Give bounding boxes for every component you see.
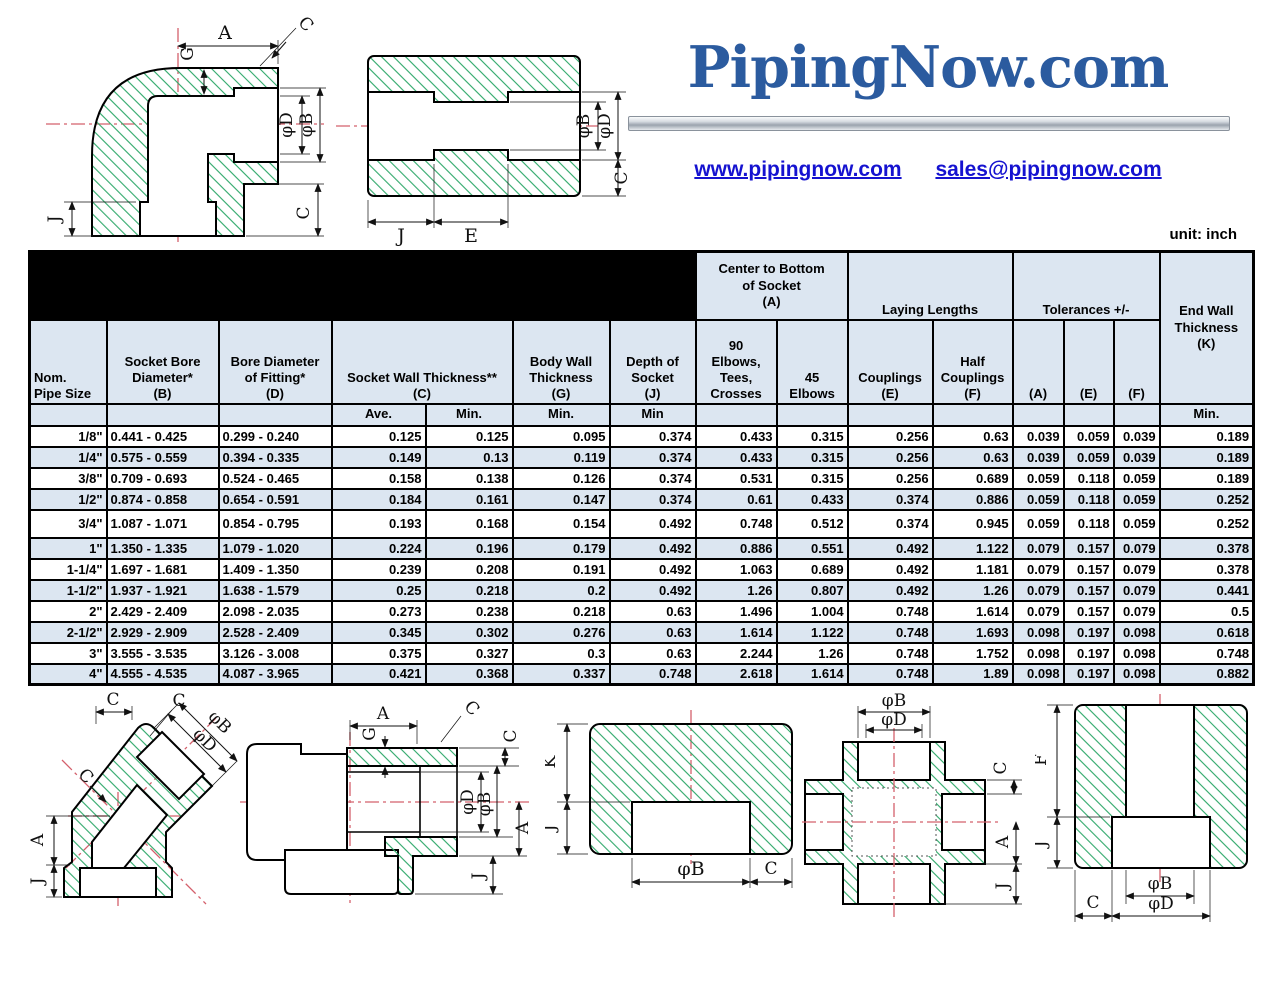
subheader-empty xyxy=(219,404,332,426)
value-cell: 0.492 xyxy=(610,510,696,538)
value-cell: 0.61 xyxy=(696,489,777,510)
row-size-cell: 1-1/4" xyxy=(30,559,107,580)
group-header-tolerances: Tolerances +/- xyxy=(1013,252,1160,320)
dim-label-j: J xyxy=(395,225,405,246)
dim-label-phi-d: φD xyxy=(881,710,907,730)
dim-label-j: J xyxy=(993,882,1013,891)
value-cell: 0.531 xyxy=(696,468,777,489)
col-header-b: Socket Bore Diameter* (B) xyxy=(107,320,219,404)
value-cell: 0.748 xyxy=(848,601,933,622)
table-title: 3000# SOCKET WELD FITTING DIMENSIONS STA… xyxy=(30,252,696,320)
value-cell: 0.63 xyxy=(610,622,696,643)
value-cell: 3.126 - 3.008 xyxy=(219,643,332,664)
value-cell: 0.345 xyxy=(332,622,426,643)
col-header-size: Nom. Pipe Size xyxy=(30,320,107,404)
value-cell: 0.059 xyxy=(1013,510,1064,538)
value-cell: 1.26 xyxy=(696,580,777,601)
value-cell: 0.079 xyxy=(1013,559,1064,580)
value-cell: 0.492 xyxy=(610,538,696,559)
value-cell: 0.098 xyxy=(1013,664,1064,685)
value-cell: 0.5 xyxy=(1160,601,1254,622)
value-cell: 4.555 - 4.535 xyxy=(107,664,219,685)
value-cell: 2.618 xyxy=(696,664,777,685)
col-header-f: Half Couplings (F) xyxy=(933,320,1013,404)
dim-label-phi-b: φB xyxy=(882,692,906,711)
value-cell: 0.239 xyxy=(332,559,426,580)
row-size-cell: 3/8" xyxy=(30,468,107,489)
value-cell: 4.087 - 3.965 xyxy=(219,664,332,685)
dim-label-c: C xyxy=(764,859,777,879)
dim-label-j: J xyxy=(469,872,489,881)
value-cell: 0.433 xyxy=(696,426,777,447)
table-title-line1: 3000# SOCKET WELD FITTING DIMENSIONS xyxy=(34,264,692,286)
tee-top-wall xyxy=(347,748,457,766)
dim-label-phi-d: φD xyxy=(595,113,615,139)
dim-label-phi-d: φD xyxy=(277,112,297,138)
contact-links: www.pipingnow.com sales@pipingnow.com xyxy=(628,158,1228,182)
subheader-j-min: Min xyxy=(610,404,696,426)
value-cell: 0.189 xyxy=(1160,447,1254,468)
value-cell: 0.433 xyxy=(777,489,848,510)
table-title-line2: STAINLESS STEEL 304/304L, 316/316L A182 xyxy=(34,286,692,308)
value-cell: 1.614 xyxy=(933,601,1013,622)
value-cell: 0.748 xyxy=(696,510,777,538)
value-cell: 0.189 xyxy=(1160,468,1254,489)
row-size-cell: 1-1/2" xyxy=(30,580,107,601)
subheader-row: Ave. Min. Min. Min Min. xyxy=(30,404,1254,426)
dim-label-a: A xyxy=(993,835,1013,849)
dim-label-j: J xyxy=(545,824,560,833)
value-cell: 0.315 xyxy=(777,468,848,489)
value-cell: 1.409 - 1.350 xyxy=(219,559,332,580)
dim-label-a: A xyxy=(376,704,390,724)
value-cell: 0.218 xyxy=(426,580,513,601)
value-cell: 0.138 xyxy=(426,468,513,489)
value-cell: 0.874 - 0.858 xyxy=(107,489,219,510)
table-row: 2"2.429 - 2.4092.098 - 2.0350.2730.2380.… xyxy=(30,601,1254,622)
value-cell: 0.63 xyxy=(610,643,696,664)
value-cell: 2.098 - 2.035 xyxy=(219,601,332,622)
value-cell: 0.126 xyxy=(513,468,610,489)
value-cell: 0.441 - 0.425 xyxy=(107,426,219,447)
dim-label-a: A xyxy=(28,833,48,847)
value-cell: 0.196 xyxy=(426,538,513,559)
col-header-e: Couplings (E) xyxy=(848,320,933,404)
value-cell: 0.441 xyxy=(1160,580,1254,601)
dim-label-k: K xyxy=(545,755,560,768)
value-cell: 0.302 xyxy=(426,622,513,643)
half-coupling-socket-bore xyxy=(1112,817,1210,868)
table-row: 1/8"0.441 - 0.4250.299 - 0.2400.1250.125… xyxy=(30,426,1254,447)
value-cell: 0.079 xyxy=(1013,538,1064,559)
value-cell: 0.374 xyxy=(848,489,933,510)
value-cell: 0.654 - 0.591 xyxy=(219,489,332,510)
subheader-empty xyxy=(1013,404,1064,426)
value-cell: 0.252 xyxy=(1160,510,1254,538)
value-cell: 0.512 xyxy=(777,510,848,538)
subheader-empty xyxy=(933,404,1013,426)
value-cell: 0.374 xyxy=(610,468,696,489)
value-cell: 0.059 xyxy=(1013,468,1064,489)
value-cell: 0.315 xyxy=(777,447,848,468)
value-cell: 0.184 xyxy=(332,489,426,510)
value-cell: 0.095 xyxy=(513,426,610,447)
drawing-45-elbow-section: C C φB φD C A J xyxy=(20,692,250,989)
col-header-tol-e: (E) xyxy=(1064,320,1114,404)
value-cell: 0.807 xyxy=(777,580,848,601)
value-cell: 2.528 - 2.409 xyxy=(219,622,332,643)
drawing-coupling-section: φB φD C J E xyxy=(330,6,630,246)
value-cell: 0.079 xyxy=(1114,559,1160,580)
value-cell: 0.039 xyxy=(1114,447,1160,468)
value-cell: 1.122 xyxy=(933,538,1013,559)
value-cell: 0.218 xyxy=(513,601,610,622)
tee-body-lower xyxy=(285,850,398,894)
value-cell: 0.098 xyxy=(1114,622,1160,643)
dim-label-a: A xyxy=(217,22,232,44)
row-size-cell: 3" xyxy=(30,643,107,664)
value-cell: 0.168 xyxy=(426,510,513,538)
subheader-empty xyxy=(777,404,848,426)
email-link[interactable]: sales@pipingnow.com xyxy=(935,158,1161,181)
group-header-row: 3000# SOCKET WELD FITTING DIMENSIONS STA… xyxy=(30,252,1254,320)
value-cell: 0.059 xyxy=(1064,447,1114,468)
value-cell: 0.551 xyxy=(777,538,848,559)
value-cell: 0.492 xyxy=(848,580,933,601)
value-cell: 0.276 xyxy=(513,622,610,643)
group-header-center-to-bottom: Center to Bottom of Socket (A) xyxy=(696,252,848,320)
subheader-empty xyxy=(696,404,777,426)
value-cell: 0.882 xyxy=(1160,664,1254,685)
value-cell: 0.368 xyxy=(426,664,513,685)
subheader-c-ave: Ave. xyxy=(332,404,426,426)
col-header-end-wall: End Wall Thickness (K) xyxy=(1160,252,1254,404)
value-cell: 1.181 xyxy=(933,559,1013,580)
value-cell: 0.315 xyxy=(777,426,848,447)
row-size-cell: 1" xyxy=(30,538,107,559)
dim-label-g: G xyxy=(178,47,198,61)
value-cell: 3.555 - 3.535 xyxy=(107,643,219,664)
value-cell: 0.374 xyxy=(610,489,696,510)
value-cell: 0.492 xyxy=(848,538,933,559)
value-cell: 0.748 xyxy=(848,664,933,685)
table-row: 1-1/2"1.937 - 1.9211.638 - 1.5790.250.21… xyxy=(30,580,1254,601)
value-cell: 0.374 xyxy=(848,510,933,538)
value-cell: 0.224 xyxy=(332,538,426,559)
value-cell: 0.157 xyxy=(1064,580,1114,601)
value-cell: 0.059 xyxy=(1114,489,1160,510)
table-row: 1/2"0.874 - 0.8580.654 - 0.5910.1840.161… xyxy=(30,489,1254,510)
value-cell: 0.374 xyxy=(610,426,696,447)
value-cell: 0.492 xyxy=(610,559,696,580)
drawing-cap-section: K J φB C xyxy=(545,692,800,989)
value-cell: 0.378 xyxy=(1160,559,1254,580)
value-cell: 0.197 xyxy=(1064,664,1114,685)
value-cell: 1.937 - 1.921 xyxy=(107,580,219,601)
dim-label-j: J xyxy=(45,215,65,224)
elbow-bore xyxy=(140,88,278,236)
dim-label-phi-b: φB xyxy=(1148,874,1172,894)
value-cell: 2.929 - 2.909 xyxy=(107,622,219,643)
value-cell: 0.13 xyxy=(426,447,513,468)
value-cell: 0.161 xyxy=(426,489,513,510)
value-cell: 1.752 xyxy=(933,643,1013,664)
value-cell: 0.492 xyxy=(610,580,696,601)
value-cell: 0.154 xyxy=(513,510,610,538)
col-header-j: Depth of Socket (J) xyxy=(610,320,696,404)
value-cell: 0.118 xyxy=(1064,489,1114,510)
value-cell: 0.238 xyxy=(426,601,513,622)
value-cell: 1.350 - 1.335 xyxy=(107,538,219,559)
value-cell: 0.886 xyxy=(933,489,1013,510)
col-header-a45: 45 Elbows xyxy=(777,320,848,404)
row-size-cell: 1/8" xyxy=(30,426,107,447)
value-cell: 1.638 - 1.579 xyxy=(219,580,332,601)
dim-label-g: G xyxy=(360,727,380,741)
col-header-g: Body Wall Thickness (G) xyxy=(513,320,610,404)
value-cell: 0.273 xyxy=(332,601,426,622)
datasheet-page: A C G φD φB J C xyxy=(0,0,1280,989)
value-cell: 1.89 xyxy=(933,664,1013,685)
value-cell: 0.575 - 0.559 xyxy=(107,447,219,468)
subheader-empty xyxy=(1064,404,1114,426)
table-row: 3"3.555 - 3.5353.126 - 3.0080.3750.3270.… xyxy=(30,643,1254,664)
value-cell: 0.256 xyxy=(848,426,933,447)
value-cell: 0.63 xyxy=(610,601,696,622)
dim-label-c-right: C xyxy=(501,729,521,742)
value-cell: 1.614 xyxy=(696,622,777,643)
table-row: 1-1/4"1.697 - 1.6811.409 - 1.3500.2390.2… xyxy=(30,559,1254,580)
value-cell: 0.157 xyxy=(1064,559,1114,580)
value-cell: 0.256 xyxy=(848,447,933,468)
drawing-90-elbow-section: A C G φD φB J C xyxy=(28,6,328,246)
col-header-c: Socket Wall Thickness** (C) xyxy=(332,320,513,404)
value-cell: 0.252 xyxy=(1160,489,1254,510)
value-cell: 0.059 xyxy=(1064,426,1114,447)
col-header-a90: 90 Elbows, Tees, Crosses xyxy=(696,320,777,404)
dim-label-phi-b: φB xyxy=(475,792,495,816)
dim-label-f: F xyxy=(1035,754,1051,766)
value-cell: 0.299 - 0.240 xyxy=(219,426,332,447)
value-cell: 0.059 xyxy=(1013,489,1064,510)
value-cell: 1.26 xyxy=(933,580,1013,601)
col-header-tol-a: (A) xyxy=(1013,320,1064,404)
value-cell: 1.697 - 1.681 xyxy=(107,559,219,580)
value-cell: 0.618 xyxy=(1160,622,1254,643)
col-header-tol-f: (F) xyxy=(1114,320,1160,404)
dim-label-phi-b: φB xyxy=(297,113,317,137)
table-row: 3/8"0.709 - 0.6930.524 - 0.4650.1580.138… xyxy=(30,468,1254,489)
value-cell: 0.189 xyxy=(1160,426,1254,447)
cap-bore xyxy=(632,802,750,854)
table-row: 1/4"0.575 - 0.5590.394 - 0.3350.1490.130… xyxy=(30,447,1254,468)
value-cell: 0.191 xyxy=(513,559,610,580)
value-cell: 1.496 xyxy=(696,601,777,622)
dim-label-c: C xyxy=(991,761,1011,774)
value-cell: 0.208 xyxy=(426,559,513,580)
dim-label-c-diag: C xyxy=(460,697,483,720)
dim-label-phi-b: φB xyxy=(677,858,704,880)
row-size-cell: 3/4" xyxy=(30,510,107,538)
logo-divider-bar xyxy=(628,116,1230,131)
value-cell: 0.125 xyxy=(332,426,426,447)
row-size-cell: 4" xyxy=(30,664,107,685)
value-cell: 0.079 xyxy=(1114,538,1160,559)
value-cell: 0.945 xyxy=(933,510,1013,538)
dim-label-e: E xyxy=(464,225,478,246)
value-cell: 0.433 xyxy=(696,447,777,468)
value-cell: 0.3 xyxy=(513,643,610,664)
elbow45-socket-bore-bottom xyxy=(80,868,156,897)
value-cell: 1.004 xyxy=(777,601,848,622)
value-cell: 0.149 xyxy=(332,447,426,468)
value-cell: 0.079 xyxy=(1013,580,1064,601)
value-cell: 0.748 xyxy=(848,622,933,643)
logo: PipingNow.com xyxy=(628,34,1228,101)
dim-label-j: J xyxy=(1035,840,1051,849)
value-cell: 1.26 xyxy=(777,643,848,664)
subheader-empty xyxy=(848,404,933,426)
value-cell: 0.689 xyxy=(933,468,1013,489)
value-cell: 0.157 xyxy=(1064,538,1114,559)
value-cell: 0.25 xyxy=(332,580,426,601)
value-cell: 0.2 xyxy=(513,580,610,601)
value-cell: 0.886 xyxy=(696,538,777,559)
value-cell: 0.421 xyxy=(332,664,426,685)
subheader-empty xyxy=(30,404,107,426)
value-cell: 0.158 xyxy=(332,468,426,489)
dimensions-table: 3000# SOCKET WELD FITTING DIMENSIONS STA… xyxy=(28,250,1255,686)
value-cell: 2.244 xyxy=(696,643,777,664)
value-cell: 0.193 xyxy=(332,510,426,538)
drawing-tee-section: A G C C φD φB A J xyxy=(235,692,540,989)
subheader-empty xyxy=(107,404,219,426)
value-cell: 0.039 xyxy=(1114,426,1160,447)
value-cell: 1.063 xyxy=(696,559,777,580)
group-header-laying-lengths: Laying Lengths xyxy=(848,252,1013,320)
value-cell: 2.429 - 2.409 xyxy=(107,601,219,622)
value-cell: 0.63 xyxy=(933,447,1013,468)
value-cell: 0.63 xyxy=(933,426,1013,447)
value-cell: 0.197 xyxy=(1064,643,1114,664)
column-header-row: Nom. Pipe Size Socket Bore Diameter* (B)… xyxy=(30,320,1254,404)
value-cell: 0.197 xyxy=(1064,622,1114,643)
subheader-c-min: Min. xyxy=(426,404,513,426)
dim-label-c-top: C xyxy=(294,13,317,36)
table-body: 1/8"0.441 - 0.4250.299 - 0.2400.1250.125… xyxy=(30,426,1254,685)
value-cell: 0.118 xyxy=(1064,468,1114,489)
value-cell: 1.087 - 1.071 xyxy=(107,510,219,538)
value-cell: 0.059 xyxy=(1114,510,1160,538)
drawing-half-coupling-section: F J φB φD C xyxy=(1035,692,1280,989)
value-cell: 0.748 xyxy=(610,664,696,685)
value-cell: 0.394 - 0.335 xyxy=(219,447,332,468)
half-coupling-through-bore xyxy=(1126,705,1194,817)
row-size-cell: 1/2" xyxy=(30,489,107,510)
value-cell: 0.524 - 0.465 xyxy=(219,468,332,489)
value-cell: 0.854 - 0.795 xyxy=(219,510,332,538)
value-cell: 1.614 xyxy=(777,664,848,685)
table-row: 1"1.350 - 1.3351.079 - 1.0200.2240.1960.… xyxy=(30,538,1254,559)
unit-label: unit: inch xyxy=(1170,226,1238,243)
table-row: 4"4.555 - 4.5354.087 - 3.9650.4210.3680.… xyxy=(30,664,1254,685)
value-cell: 0.098 xyxy=(1114,643,1160,664)
value-cell: 0.059 xyxy=(1114,468,1160,489)
value-cell: 0.748 xyxy=(848,643,933,664)
dim-label-c-top: C xyxy=(106,692,119,710)
subheader-empty xyxy=(1114,404,1160,426)
value-cell: 0.118 xyxy=(1064,510,1114,538)
value-cell: 0.748 xyxy=(1160,643,1254,664)
subheader-g-min: Min. xyxy=(513,404,610,426)
value-cell: 0.098 xyxy=(1013,622,1064,643)
value-cell: 0.098 xyxy=(1114,664,1160,685)
value-cell: 0.689 xyxy=(777,559,848,580)
col-header-d: Bore Diameter of Fitting* (D) xyxy=(219,320,332,404)
table-row: 2-1/2"2.929 - 2.9092.528 - 2.4090.3450.3… xyxy=(30,622,1254,643)
value-cell: 0.119 xyxy=(513,447,610,468)
tee-body-outline xyxy=(247,744,347,860)
value-cell: 0.079 xyxy=(1013,601,1064,622)
value-cell: 0.337 xyxy=(513,664,610,685)
dim-label-j: J xyxy=(28,877,48,886)
value-cell: 0.125 xyxy=(426,426,513,447)
dim-label-phi-d: φD xyxy=(1148,894,1174,914)
subheader-k-min: Min. xyxy=(1160,404,1254,426)
value-cell: 0.492 xyxy=(848,559,933,580)
dim-label-phi-b: φB xyxy=(574,114,594,138)
value-cell: 0.374 xyxy=(610,447,696,468)
value-cell: 0.327 xyxy=(426,643,513,664)
value-cell: 1.693 xyxy=(933,622,1013,643)
dim-label-a-right: A xyxy=(513,821,533,835)
value-cell: 0.098 xyxy=(1013,643,1064,664)
row-size-cell: 2" xyxy=(30,601,107,622)
value-cell: 0.256 xyxy=(848,468,933,489)
value-cell: 0.375 xyxy=(332,643,426,664)
value-cell: 0.039 xyxy=(1013,447,1064,468)
website-link[interactable]: www.pipingnow.com xyxy=(694,158,901,181)
value-cell: 0.147 xyxy=(513,489,610,510)
value-cell: 1.079 - 1.020 xyxy=(219,538,332,559)
value-cell: 0.157 xyxy=(1064,601,1114,622)
drawing-cross-section: φB φD C A J xyxy=(800,692,1035,989)
row-size-cell: 2-1/2" xyxy=(30,622,107,643)
value-cell: 0.079 xyxy=(1114,580,1160,601)
value-cell: 0.079 xyxy=(1114,601,1160,622)
value-cell: 0.709 - 0.693 xyxy=(107,468,219,489)
value-cell: 0.378 xyxy=(1160,538,1254,559)
value-cell: 0.039 xyxy=(1013,426,1064,447)
dim-label-c: C xyxy=(1086,893,1099,913)
row-size-cell: 1/4" xyxy=(30,447,107,468)
dim-label-c-bottom: C xyxy=(294,206,314,219)
value-cell: 0.179 xyxy=(513,538,610,559)
value-cell: 1.122 xyxy=(777,622,848,643)
table-row: 3/4"1.087 - 1.0710.854 - 0.7950.1930.168… xyxy=(30,510,1254,538)
